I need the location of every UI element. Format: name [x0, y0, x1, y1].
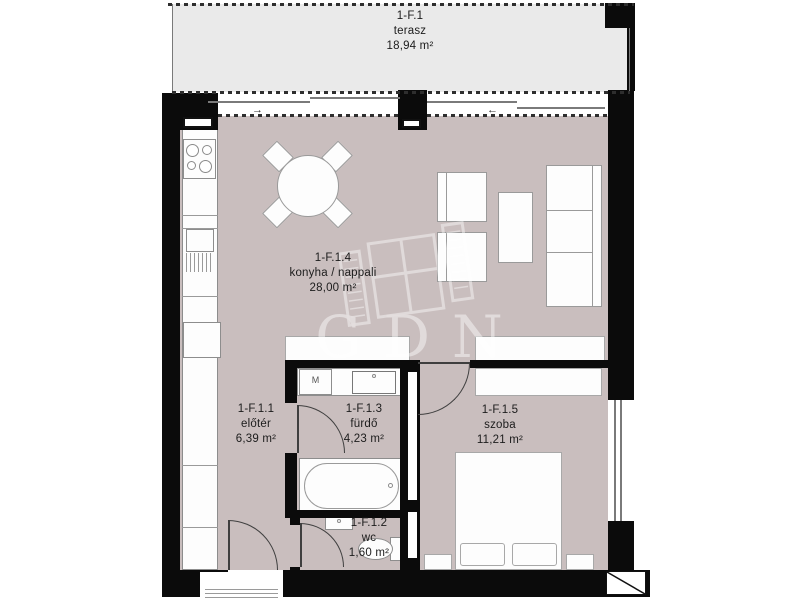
counter-divider [182, 296, 218, 297]
sink-faucet [372, 374, 376, 378]
sideboard [285, 336, 410, 361]
room-name: előtér [197, 417, 315, 432]
window-pane [620, 400, 622, 521]
sliding-panel [517, 107, 605, 109]
stove-burner [187, 161, 196, 170]
window-pane [614, 400, 616, 521]
entrance-mat-hatch [205, 586, 278, 598]
dining-table [277, 155, 339, 217]
sofa-backrest [592, 165, 593, 307]
terrace-border-right [629, 28, 630, 92]
dishwasher [186, 229, 214, 252]
room-area: 4,23 m² [305, 432, 423, 447]
stove-burner [199, 160, 212, 173]
pillar-terrace [605, 3, 634, 28]
sofa-divider [546, 210, 592, 211]
glass-line-inner [427, 114, 608, 117]
nightstand [566, 554, 594, 570]
room-name: fürdő [305, 417, 423, 432]
counter-divider [182, 215, 218, 216]
room-area: 11,21 m² [441, 433, 559, 448]
glass-line-outer [172, 91, 630, 94]
label-furdo: 1-F.1.3 fürdő 4,23 m² [305, 402, 423, 448]
pillow [512, 543, 557, 566]
armchair-backrest [446, 232, 447, 282]
pillar-notch [402, 119, 421, 128]
sideboard [475, 336, 605, 361]
pillar-notch [183, 117, 213, 128]
label-wc: 1-F.1.2 wc 1,60 m² [310, 516, 428, 562]
pillow [460, 543, 505, 566]
room-name: szoba [441, 418, 559, 433]
slide-arrow-right-icon: → [252, 105, 263, 116]
room-code: 1-F.1.2 [310, 516, 428, 531]
corner-marker [606, 571, 646, 595]
room-code: 1-F.1 [345, 9, 475, 24]
label-szoba: 1-F.1.5 szoba 11,21 m² [441, 403, 559, 449]
counter-divider [182, 465, 218, 466]
terrace-border-top [168, 3, 634, 6]
wardrobe [475, 368, 602, 396]
bathtub-inner [304, 463, 399, 509]
label-terasz: 1-F.1 terasz 18,94 m² [345, 9, 475, 55]
terrace-border-left [172, 4, 173, 92]
floor-plan: M GDN [0, 0, 800, 600]
counter-divider [182, 527, 218, 528]
room-area: 1,60 m² [310, 546, 428, 561]
stove-burner [202, 145, 212, 155]
coffee-table [498, 192, 533, 263]
armchair [437, 232, 487, 282]
wall-right-lower [608, 521, 634, 570]
slide-arrow-left-icon: ← [487, 105, 498, 116]
glass-line-inner [218, 114, 398, 117]
bathtub-faucet [388, 483, 393, 488]
sliding-panel [310, 97, 400, 99]
room-code: 1-F.1.4 [273, 251, 393, 266]
room-area: 6,39 m² [197, 432, 315, 447]
stove-burner [186, 144, 199, 157]
room-name: wc [310, 531, 428, 546]
room-code: 1-F.1.1 [197, 402, 315, 417]
room-name: terasz [345, 24, 475, 39]
room-name: konyha / nappali [273, 266, 393, 281]
room-code: 1-F.1.3 [305, 402, 423, 417]
wall-left [162, 93, 180, 597]
room-area: 18,94 m² [345, 39, 475, 54]
sofa [546, 165, 602, 307]
label-eloter: 1-F.1.1 előtér 6,39 m² [197, 402, 315, 448]
armchair [437, 172, 487, 222]
nightstand [424, 554, 452, 570]
sliding-panel [208, 101, 310, 103]
sliding-panel [427, 101, 517, 103]
label-konyha: 1-F.1.4 konyha / nappali 28,00 m² [273, 251, 393, 297]
living-kitchen-floor [180, 116, 608, 370]
counter-cabinet [183, 322, 221, 358]
room-code: 1-F.1.5 [441, 403, 559, 418]
armchair-backrest [446, 172, 447, 222]
sofa-divider [546, 252, 592, 253]
room-area: 28,00 m² [273, 281, 393, 296]
washing-machine-label: M [299, 375, 332, 385]
wall-right [608, 90, 634, 400]
dishwasher-hatch [186, 253, 214, 272]
wc-door-opening [290, 525, 300, 567]
